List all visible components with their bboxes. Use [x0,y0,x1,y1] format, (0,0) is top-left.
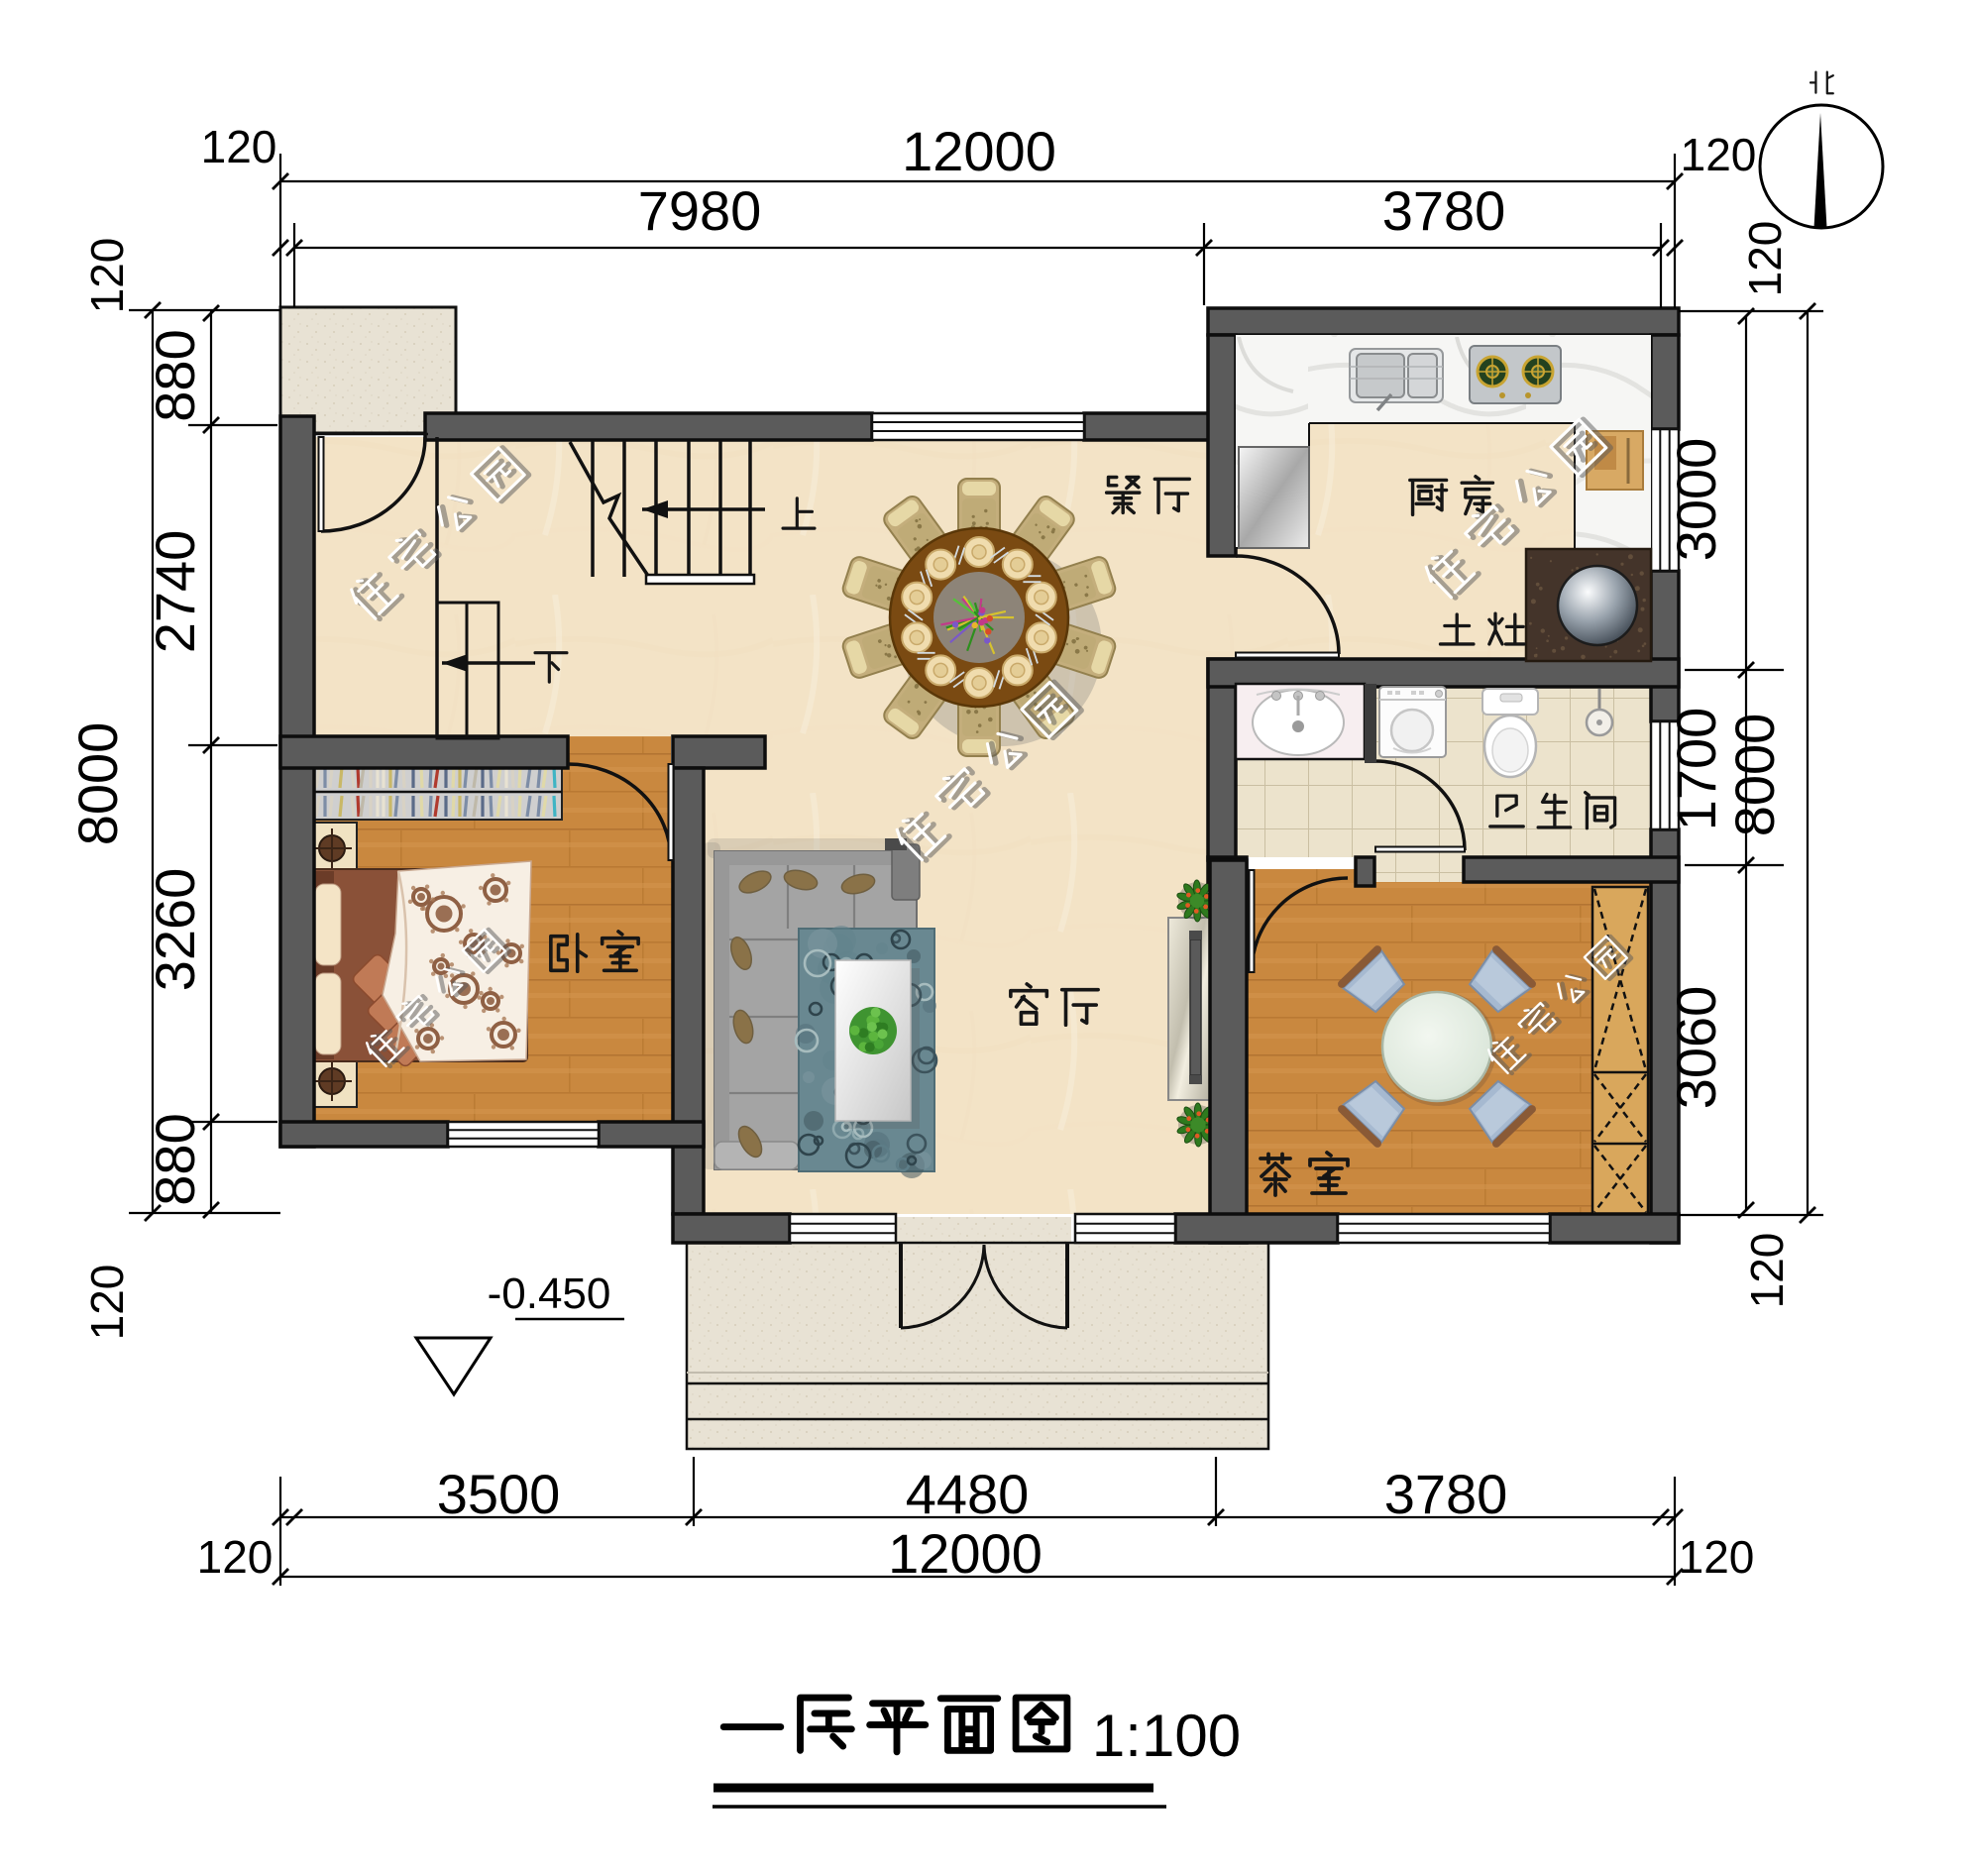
svg-text:1:100: 1:100 [1092,1703,1241,1769]
svg-text:3000: 3000 [1665,438,1727,562]
svg-text:880: 880 [144,1113,206,1205]
svg-text:2740: 2740 [144,530,206,654]
svg-text:8000: 8000 [66,722,129,846]
svg-text:3260: 3260 [144,868,206,992]
svg-text:3780: 3780 [1384,1463,1508,1525]
svg-text:12000: 12000 [888,1522,1042,1585]
svg-text:120: 120 [1739,221,1791,297]
svg-text:7980: 7980 [638,179,762,242]
svg-text:120: 120 [81,1265,133,1341]
svg-text:120: 120 [201,121,277,172]
svg-text:4480: 4480 [906,1463,1030,1525]
svg-text:120: 120 [197,1531,274,1583]
svg-text:8000: 8000 [1723,714,1786,837]
svg-text:3060: 3060 [1665,986,1727,1110]
svg-text:12000: 12000 [902,120,1056,182]
svg-text:3500: 3500 [437,1463,561,1525]
svg-text:120: 120 [1741,1233,1793,1309]
svg-text:120: 120 [1679,1531,1755,1583]
svg-text:1700: 1700 [1665,708,1727,831]
svg-text:120: 120 [1681,129,1757,180]
svg-text:-0.450: -0.450 [488,1269,611,1318]
svg-text:880: 880 [144,329,206,421]
svg-text:120: 120 [81,238,133,314]
svg-text:3780: 3780 [1382,179,1506,242]
